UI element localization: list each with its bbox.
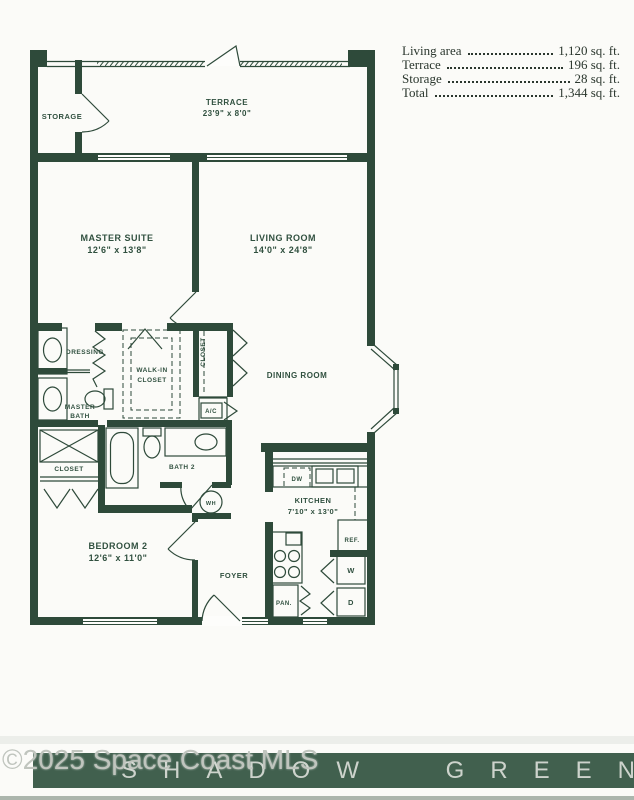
row-label: Living area: [402, 44, 462, 58]
label-ac: A/C: [205, 409, 217, 415]
label-kitchen-dims: 7'10" x 13'0": [288, 507, 339, 516]
label-kitchen: KITCHEN: [295, 496, 332, 505]
scan-artifact: [0, 736, 634, 744]
bath2-toilet-tank: [143, 428, 161, 436]
dot-leader: [447, 67, 563, 69]
row-label: Storage: [402, 72, 442, 86]
label-terrace-dims: 23'9" x 8'0": [203, 109, 252, 118]
label-bath2: BATH 2: [169, 464, 195, 471]
label-living-room: LIVING ROOM: [250, 233, 316, 243]
label-living-dims: 14'0" x 24'8": [253, 245, 312, 255]
stove: [272, 532, 302, 583]
table-row: Living area 1,120 sq. ft.: [402, 44, 620, 58]
bath2-toilet: [144, 436, 160, 458]
label-dressing: DRESSING: [66, 349, 104, 356]
bedroom2-door: [168, 522, 195, 560]
terrace-railing: [47, 46, 350, 67]
row-value: 28 sq. ft.: [575, 72, 621, 86]
label-wh: WH: [206, 501, 216, 507]
label-ref: REF.: [344, 538, 359, 544]
bay-window: [371, 345, 399, 433]
pantry-bifold: [300, 586, 310, 615]
wic-doors: [128, 329, 162, 349]
row-value: 1,344 sq. ft.: [558, 86, 620, 100]
label-master-bath-2: BATH: [70, 413, 90, 420]
dressing-sink: [44, 338, 62, 362]
label-master-bath-1: MASTER: [65, 404, 95, 411]
label-storage: STORAGE: [42, 112, 82, 121]
label-dw: DW: [292, 477, 303, 483]
terrace-gate-door: [207, 46, 240, 66]
laundry-doors: [321, 559, 334, 615]
row-label: Total: [402, 86, 429, 100]
label-washer: W: [347, 566, 355, 575]
dressing-bifold: [93, 331, 105, 387]
master-bath-sink: [44, 387, 62, 411]
label-master-suite: MASTER SUITE: [80, 233, 153, 243]
label-dryer: D: [348, 598, 354, 607]
row-value: 1,120 sq. ft.: [558, 44, 620, 58]
label-pantry: PAN.: [276, 601, 292, 607]
room-labels: STORAGE TERRACE 23'9" x 8'0" MASTER SUIT…: [42, 98, 360, 607]
closet-bifolds: [44, 489, 98, 508]
label-terrace: TERRACE: [206, 98, 248, 107]
hall-closet-doors: [233, 330, 247, 386]
area-table: Living area 1,120 sq. ft. Terrace 196 sq…: [402, 44, 620, 100]
table-row: Terrace 196 sq. ft.: [402, 58, 620, 72]
dot-leader: [435, 95, 554, 97]
label-bed-closet: CLOSET: [54, 466, 83, 473]
row-label: Terrace: [402, 58, 441, 72]
mls-watermark: ©2025 Space Coast MLS: [2, 744, 318, 776]
label-dining-room: DINING ROOM: [267, 371, 328, 380]
label-wic-1: WALK-IN: [136, 367, 167, 374]
label-bedroom2: BEDROOM 2: [88, 541, 147, 551]
scan-bottom-edge: [0, 796, 634, 800]
label-hall-closet: CLOSET: [200, 337, 207, 366]
ac-door: [224, 402, 237, 420]
label-foyer: FOYER: [220, 571, 248, 580]
bath2-sink: [195, 434, 217, 450]
row-value: 196 sq. ft.: [568, 58, 620, 72]
storage-door: [82, 94, 109, 132]
dot-leader: [468, 53, 554, 55]
label-wic-2: CLOSET: [137, 377, 166, 384]
dressing-vanity: [38, 328, 67, 374]
table-row: Total 1,344 sq. ft.: [402, 86, 620, 100]
master-bath-vanity: [38, 378, 67, 420]
dot-leader: [448, 81, 570, 83]
floor-plan: STORAGE TERRACE 23'9" x 8'0" MASTER SUIT…: [0, 0, 634, 745]
label-bedroom2-dims: 12'6" x 11'0": [89, 553, 148, 563]
label-master-dims: 12'6" x 13'8": [87, 245, 146, 255]
table-row: Storage 28 sq. ft.: [402, 72, 620, 86]
